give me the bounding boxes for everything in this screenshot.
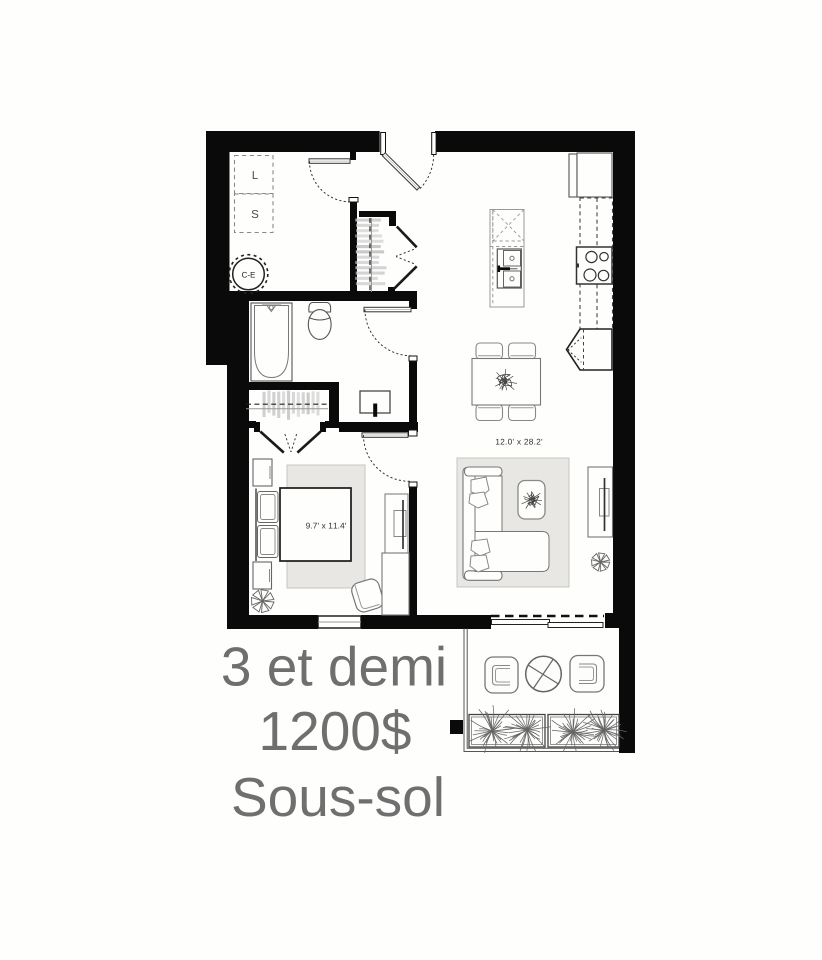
svg-text:1200$: 1200$ xyxy=(259,700,412,762)
svg-text:3 et demi: 3 et demi xyxy=(221,635,447,697)
svg-text:Sous-sol: Sous-sol xyxy=(231,766,445,828)
